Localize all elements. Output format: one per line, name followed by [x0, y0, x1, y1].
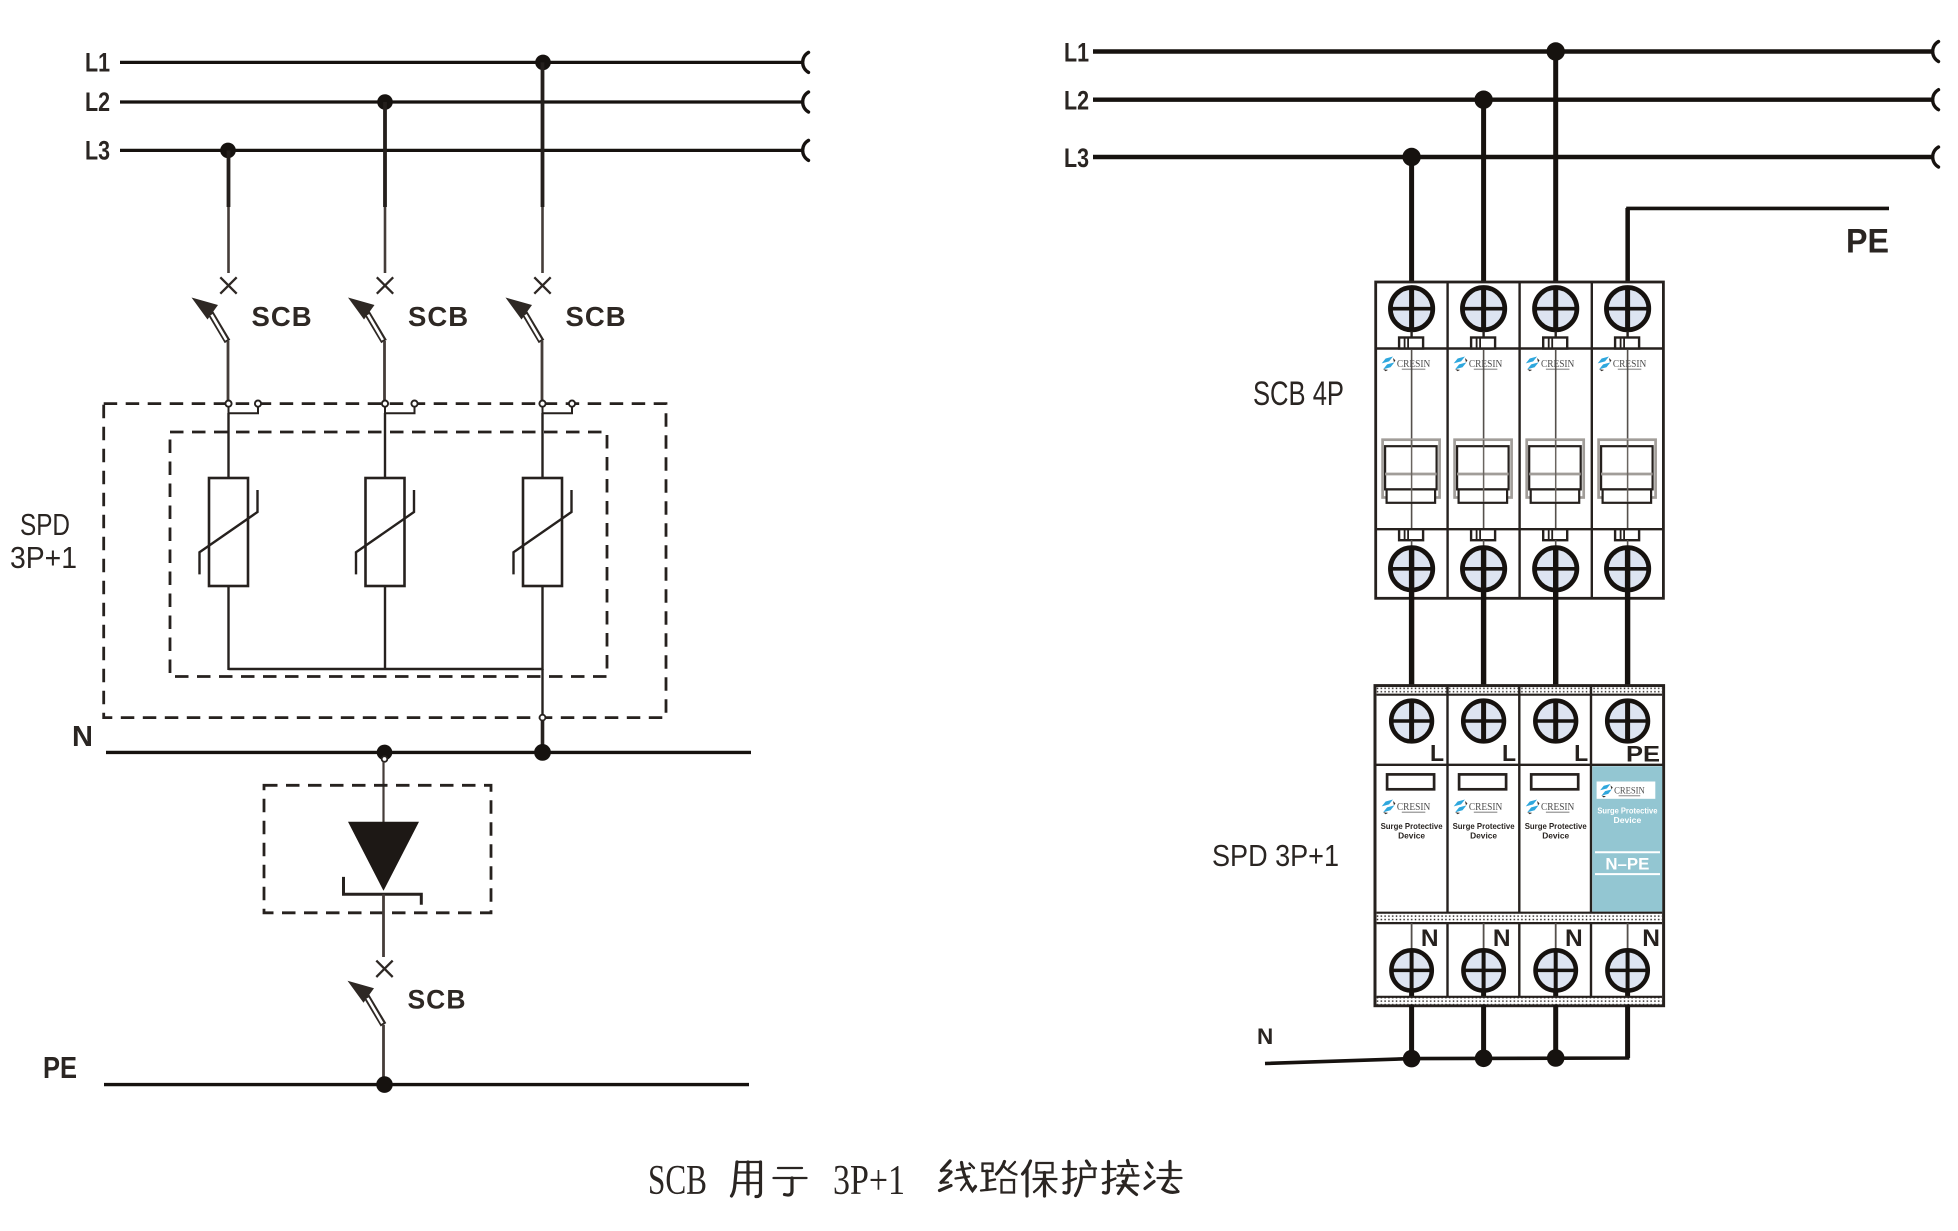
svg-text:L: L [1430, 740, 1444, 766]
svg-text:SPD: SPD [20, 508, 70, 542]
svg-text:L3: L3 [1064, 143, 1089, 173]
svg-text:N: N [1421, 925, 1439, 952]
svg-text:3P+1: 3P+1 [833, 1158, 905, 1204]
svg-text:CRESIN: CRESIN [1397, 359, 1431, 370]
svg-text:L1: L1 [85, 47, 110, 77]
svg-text:CRESIN: CRESIN [1541, 359, 1575, 370]
svg-text:SCB: SCB [408, 985, 467, 1015]
svg-text:L2: L2 [1064, 86, 1089, 116]
svg-text:CRESIN: CRESIN [1469, 802, 1503, 813]
svg-text:N: N [1565, 925, 1583, 952]
svg-text:L: L [1574, 740, 1588, 766]
svg-text:SPD 3P+1: SPD 3P+1 [1212, 838, 1339, 873]
svg-text:CRESIN: CRESIN [1614, 786, 1645, 796]
svg-text:PE: PE [1846, 223, 1889, 261]
svg-text:Device: Device [1470, 830, 1497, 840]
svg-text:N: N [1493, 925, 1511, 952]
svg-text:CRESIN: CRESIN [1469, 359, 1503, 370]
svg-text:PE: PE [1626, 742, 1660, 767]
svg-text:SCB: SCB [408, 301, 469, 332]
svg-text:CRESIN: CRESIN [1613, 359, 1647, 370]
svg-text:SCB: SCB [252, 301, 313, 332]
svg-text:Device: Device [1542, 830, 1569, 840]
svg-text:N: N [1257, 1024, 1273, 1049]
svg-text:SCB: SCB [648, 1158, 707, 1204]
svg-text:N: N [72, 721, 93, 753]
svg-text:N–PE: N–PE [1605, 856, 1649, 874]
svg-text:L: L [1502, 740, 1516, 766]
svg-text:L1: L1 [1064, 38, 1089, 68]
svg-text:SCB 4P: SCB 4P [1253, 375, 1344, 413]
svg-text:N: N [1642, 925, 1660, 952]
svg-text:CRESIN: CRESIN [1541, 802, 1575, 813]
svg-text:Device: Device [1398, 830, 1425, 840]
svg-text:CRESIN: CRESIN [1397, 802, 1431, 813]
svg-text:3P+1: 3P+1 [10, 541, 77, 575]
svg-text:PE: PE [43, 1050, 77, 1085]
svg-text:L3: L3 [85, 135, 110, 165]
svg-text:SCB: SCB [566, 301, 627, 332]
svg-text:Surge Protective: Surge Protective [1597, 806, 1657, 816]
svg-text:L2: L2 [85, 87, 110, 117]
svg-text:Device: Device [1614, 815, 1642, 825]
